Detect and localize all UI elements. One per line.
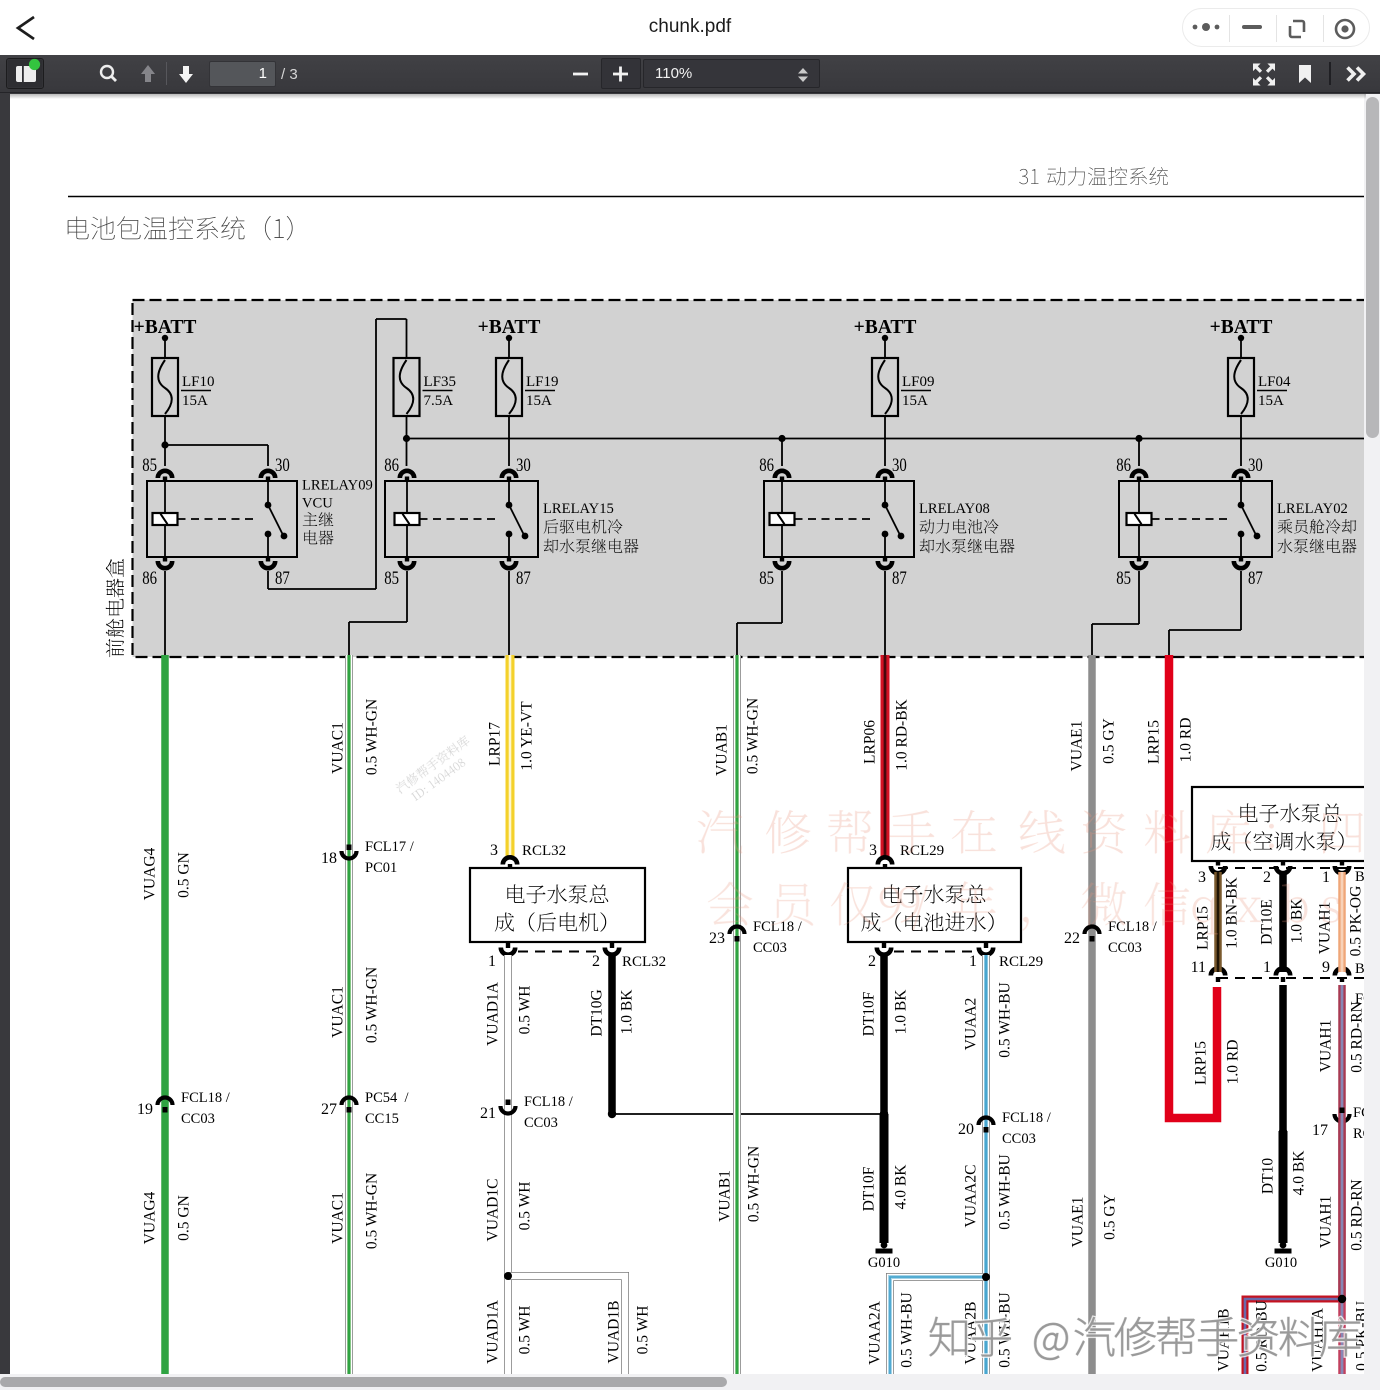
svg-text:VUAE1: VUAE1 [1070,1197,1087,1248]
svg-text:0.5 GY: 0.5 GY [1101,718,1118,764]
svg-text:PC01: PC01 [365,860,397,876]
svg-text:1.0 BN-BK: 1.0 BN-BK [1224,876,1241,948]
svg-text:LRP06: LRP06 [862,720,879,764]
svg-text:1.0 RD: 1.0 RD [1225,1040,1242,1085]
svg-text:VUAD1C: VUAD1C [485,1179,502,1242]
svg-text:VUAE1: VUAE1 [1069,721,1086,772]
svg-text:VUAG4: VUAG4 [142,1191,159,1244]
svg-text:4.0 BK: 4.0 BK [1291,1150,1308,1196]
svg-text:DT10F: DT10F [861,991,878,1036]
svg-text:0.5 WH-BU: 0.5 WH-BU [899,1292,916,1368]
svg-text:0.5 WH: 0.5 WH [635,1306,652,1355]
svg-text:RCL32: RCL32 [622,954,666,970]
svg-text:1: 1 [1322,869,1330,886]
svg-text:15A: 15A [1258,393,1284,409]
svg-text:FCL18 /: FCL18 / [1108,919,1158,935]
svg-text:FCL17 /: FCL17 / [365,839,415,855]
svg-text:2: 2 [868,953,876,970]
svg-text:9: 9 [1322,959,1330,976]
svg-text:RCL29: RCL29 [999,954,1043,970]
svg-text:VUAB1: VUAB1 [717,1170,734,1222]
svg-text:86: 86 [759,456,774,476]
svg-text:15A: 15A [182,393,208,409]
svg-text:VCU: VCU [302,496,333,512]
svg-text:1: 1 [969,953,977,970]
svg-text:DT10E: DT10E [1259,899,1276,945]
svg-text:VUAA2A: VUAA2A [867,1300,884,1365]
svg-text:3: 3 [1198,869,1206,886]
svg-text:0.5 WH-GN: 0.5 WH-GN [746,1146,763,1222]
svg-text:LF19: LF19 [526,374,559,390]
svg-text:FCL18 /: FCL18 / [524,1094,574,1110]
svg-text:85: 85 [1116,569,1131,589]
svg-text:LRELAY02: LRELAY02 [1277,501,1348,517]
svg-text:0.5 WH: 0.5 WH [517,986,534,1035]
svg-text:LRELAY09: LRELAY09 [302,478,373,494]
svg-text:0.5 GN: 0.5 GN [176,852,193,898]
svg-text:VUAD1B: VUAD1B [606,1301,623,1364]
svg-text:CC03: CC03 [1108,940,1142,956]
svg-text:0.5 GY: 0.5 GY [1102,1194,1119,1240]
svg-text:3: 3 [869,842,877,859]
svg-text:0.5 GN: 0.5 GN [176,1195,193,1241]
svg-text:85: 85 [142,456,157,476]
svg-text:CC03: CC03 [753,940,787,956]
svg-text:PC54 /: PC54 / [365,1090,409,1106]
svg-text:0.5 WH: 0.5 WH [517,1306,534,1355]
svg-text:1.0 RD: 1.0 RD [1178,718,1195,763]
svg-text:0.5 WH-BU: 0.5 WH-BU [997,982,1014,1058]
svg-text:18: 18 [321,850,337,867]
svg-text:86: 86 [384,456,399,476]
svg-text:RCL32: RCL32 [522,843,566,859]
svg-text:85: 85 [384,569,399,589]
svg-text:VUAH1: VUAH1 [1318,1020,1335,1073]
svg-text:2: 2 [1263,869,1271,886]
svg-text:2: 2 [592,953,600,970]
svg-text:DT10F: DT10F [861,1166,878,1211]
svg-text:VUAB1: VUAB1 [714,724,731,776]
svg-text:VUAD1A: VUAD1A [485,981,502,1046]
svg-text:1.0 RD-BK: 1.0 RD-BK [894,698,911,770]
svg-text:CC03: CC03 [1002,1131,1036,1147]
svg-text:4.0 BK: 4.0 BK [893,1164,910,1210]
svg-text:87: 87 [892,569,907,589]
svg-text:11: 11 [1191,959,1206,976]
svg-text:19: 19 [137,1101,153,1118]
svg-text:0.5 WH-GN: 0.5 WH-GN [364,967,381,1043]
svg-text:VUAC1: VUAC1 [330,986,347,1038]
svg-text:VUAC1: VUAC1 [330,722,347,774]
svg-text:30: 30 [1248,456,1263,476]
svg-text:87: 87 [1248,569,1263,589]
svg-text:23: 23 [709,930,725,947]
svg-text:FCL18 /: FCL18 / [753,919,803,935]
svg-text:LRP15: LRP15 [1193,1041,1210,1085]
svg-text:27: 27 [321,1101,337,1118]
svg-text:CC15: CC15 [365,1111,399,1127]
svg-text:VUAH1: VUAH1 [1318,1196,1335,1249]
svg-text:15A: 15A [526,393,552,409]
svg-text:1: 1 [1263,959,1271,976]
svg-text:21: 21 [480,1105,496,1122]
svg-text:FCL18 /: FCL18 / [181,1090,231,1106]
svg-text:LF10: LF10 [182,374,215,390]
svg-text:0.5 RD-RN: 0.5 RD-RN [1349,1179,1366,1250]
svg-text:CC03: CC03 [181,1111,215,1127]
svg-text:86: 86 [142,569,157,589]
svg-text:1.0 YE-VT: 1.0 YE-VT [519,701,536,771]
svg-text:0.5 WH-GN: 0.5 WH-GN [364,699,381,775]
svg-text:22: 22 [1064,930,1080,947]
svg-text:LRP17: LRP17 [487,722,504,766]
svg-text:7.5A: 7.5A [424,393,454,409]
svg-text:30: 30 [516,456,531,476]
svg-text:LRELAY15: LRELAY15 [543,501,614,517]
svg-text:LF04: LF04 [1258,374,1291,390]
svg-text:DT10: DT10 [1260,1158,1277,1194]
svg-text:FCL18 /: FCL18 / [1002,1110,1052,1126]
svg-text:20: 20 [958,1121,974,1138]
svg-text:30: 30 [892,456,907,476]
svg-text:1: 1 [488,953,496,970]
svg-text:0.5 WH-GN: 0.5 WH-GN [745,698,762,774]
svg-text:87: 87 [275,569,290,589]
svg-text:VUAA2: VUAA2 [963,998,980,1051]
svg-text:1.0 BK: 1.0 BK [893,989,910,1035]
svg-text:1.0 BK: 1.0 BK [619,989,636,1035]
svg-text:VUAA2C: VUAA2C [963,1165,980,1228]
svg-text:LF09: LF09 [902,374,935,390]
svg-text:DT10G: DT10G [589,989,606,1036]
svg-text:15A: 15A [902,393,928,409]
svg-text:LRELAY08: LRELAY08 [919,501,990,517]
svg-text:LF35: LF35 [424,374,457,390]
svg-text:30: 30 [275,456,290,476]
svg-text:LRP15: LRP15 [1195,906,1212,950]
svg-text:85: 85 [759,569,774,589]
svg-text:0.5 WH-GN: 0.5 WH-GN [364,1173,381,1249]
svg-text:CC03: CC03 [524,1115,558,1131]
svg-text:VUAC1: VUAC1 [330,1192,347,1244]
svg-text:G010: G010 [868,1255,900,1271]
svg-text:0.5 WH: 0.5 WH [517,1182,534,1231]
svg-text:LRP15: LRP15 [1146,720,1163,764]
svg-text:86: 86 [1116,456,1131,476]
svg-text:0.5 RD-RN: 0.5 RD-RN [1349,1001,1366,1072]
svg-text:VUAD1A: VUAD1A [485,1299,502,1364]
svg-text:87: 87 [516,569,531,589]
svg-text:VUAG4: VUAG4 [142,847,159,900]
svg-text:17: 17 [1312,1122,1328,1139]
svg-text:0.5 PK-OG: 0.5 PK-OG [1348,886,1365,957]
svg-text:0.5 WH-BU: 0.5 WH-BU [997,1154,1014,1230]
svg-text:3: 3 [490,842,498,859]
svg-text:G010: G010 [1265,1255,1297,1271]
